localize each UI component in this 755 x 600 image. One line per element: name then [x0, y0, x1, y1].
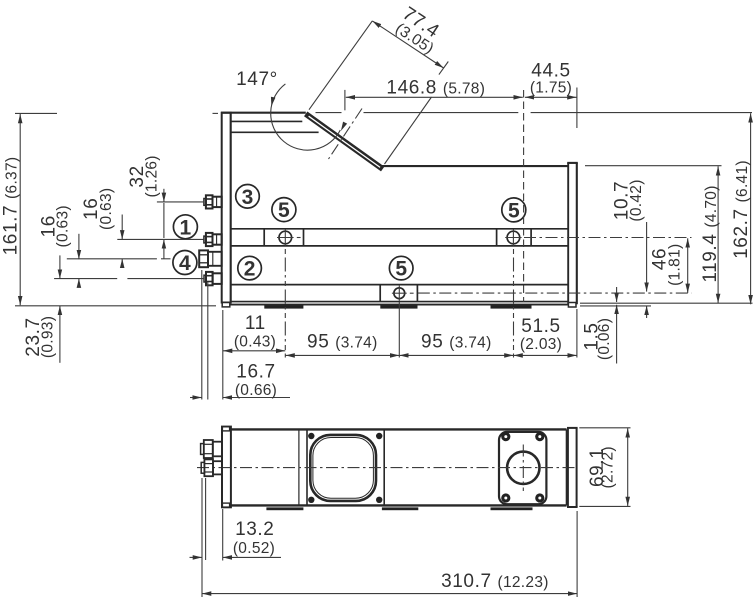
svg-text:5: 5 — [508, 200, 520, 223]
svg-text:(1.81): (1.81) — [667, 244, 684, 286]
svg-text:(0.66): (0.66) — [235, 382, 277, 399]
svg-text:95 (3.74): 95 (3.74) — [421, 332, 492, 353]
svg-text:1: 1 — [180, 216, 192, 239]
svg-text:(0.63): (0.63) — [55, 205, 72, 247]
svg-text:(1.75): (1.75) — [530, 80, 572, 97]
svg-text:(0.52): (0.52) — [233, 540, 275, 557]
svg-text:310.7 (12.23): 310.7 (12.23) — [441, 571, 549, 592]
svg-text:(0.43): (0.43) — [234, 333, 276, 350]
svg-text:11: 11 — [245, 313, 266, 334]
svg-text:95 (3.74): 95 (3.74) — [307, 332, 378, 353]
svg-text:(2.03): (2.03) — [520, 336, 562, 353]
svg-text:4: 4 — [179, 252, 191, 275]
svg-text:5: 5 — [278, 199, 290, 222]
svg-text:5: 5 — [395, 258, 407, 281]
svg-text:119.4 (4.70): 119.4 (4.70) — [700, 185, 721, 282]
svg-text:44.5: 44.5 — [531, 60, 570, 81]
svg-text:3: 3 — [242, 186, 254, 209]
svg-text:162.7 (6.41): 162.7 (6.41) — [731, 160, 752, 259]
svg-text:(2.72): (2.72) — [599, 446, 616, 488]
svg-text:161.7 (6.37): 161.7 (6.37) — [1, 157, 22, 256]
svg-text:147°: 147° — [236, 69, 278, 90]
svg-text:146.8 (5.78): 146.8 (5.78) — [386, 78, 485, 99]
svg-text:2: 2 — [244, 258, 256, 281]
svg-text:(0.93): (0.93) — [39, 316, 56, 358]
svg-text:51.5: 51.5 — [521, 316, 560, 337]
svg-text:(1.26): (1.26) — [144, 155, 161, 197]
svg-text:(0.63): (0.63) — [98, 188, 115, 230]
svg-text:13.2: 13.2 — [235, 519, 274, 540]
svg-text:(0.42): (0.42) — [628, 179, 645, 221]
svg-text:16.7: 16.7 — [236, 361, 275, 382]
svg-text:(0.06): (0.06) — [596, 318, 613, 360]
